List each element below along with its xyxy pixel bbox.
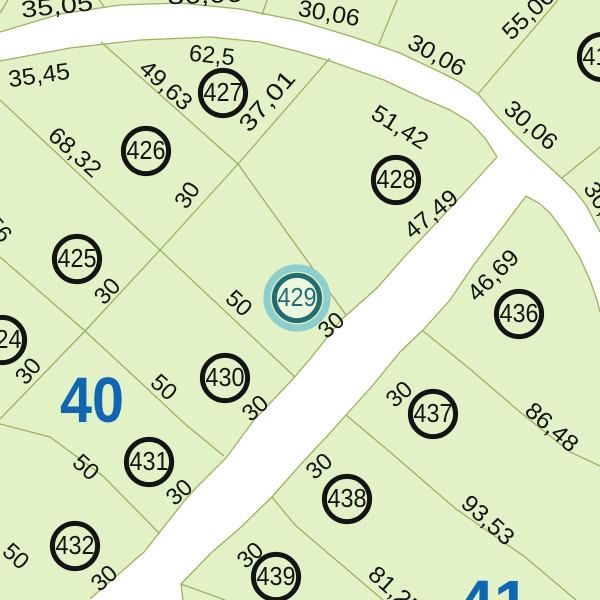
svg-text:40: 40 <box>60 364 124 436</box>
svg-text:425: 425 <box>58 245 97 273</box>
svg-text:432: 432 <box>56 532 95 560</box>
svg-text:431: 431 <box>130 448 169 476</box>
svg-text:424: 424 <box>0 326 22 354</box>
svg-text:427: 427 <box>204 79 243 107</box>
svg-text:438: 438 <box>328 485 367 513</box>
svg-text:439: 439 <box>257 563 296 591</box>
svg-text:62,5: 62,5 <box>188 40 236 71</box>
svg-text:437: 437 <box>414 400 453 428</box>
svg-text:428: 428 <box>377 166 416 194</box>
svg-text:429: 429 <box>278 284 317 312</box>
svg-text:436: 436 <box>500 300 539 328</box>
svg-text:426: 426 <box>127 137 166 165</box>
svg-text:41: 41 <box>458 567 529 600</box>
svg-text:430: 430 <box>206 364 245 392</box>
svg-text:418: 418 <box>583 43 600 71</box>
